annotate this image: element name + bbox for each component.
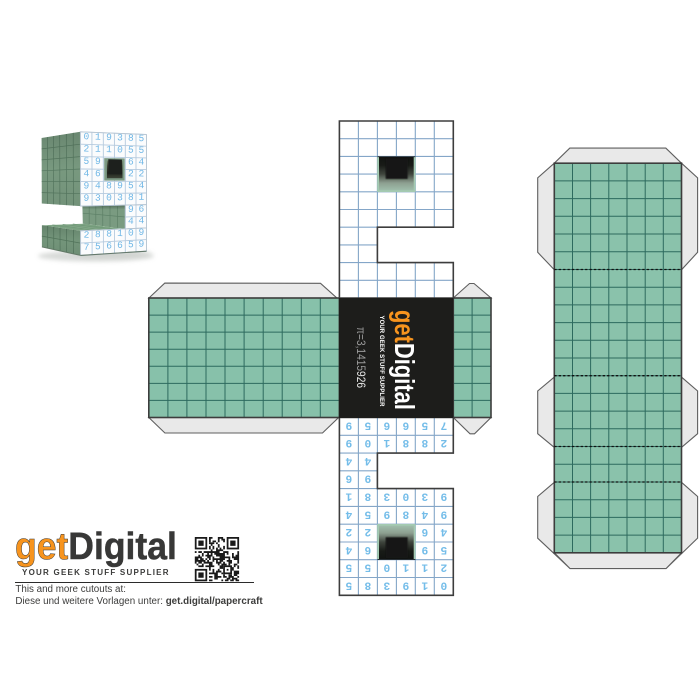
svg-text:6: 6 xyxy=(383,418,390,430)
svg-text:1: 1 xyxy=(95,144,101,155)
svg-text:2: 2 xyxy=(83,143,89,154)
svg-text:5: 5 xyxy=(440,543,447,555)
svg-text:6: 6 xyxy=(128,156,134,167)
svg-text:4: 4 xyxy=(83,168,89,179)
svg-text:5: 5 xyxy=(138,133,144,144)
svg-text:8: 8 xyxy=(364,490,371,502)
svg-text:1: 1 xyxy=(345,490,352,502)
svg-text:0: 0 xyxy=(364,436,371,448)
svg-text:9: 9 xyxy=(106,132,112,143)
svg-text:7: 7 xyxy=(440,418,447,430)
svg-text:0: 0 xyxy=(128,227,134,238)
svg-text:5: 5 xyxy=(83,156,89,167)
svg-text:1: 1 xyxy=(421,561,428,573)
svg-text:0: 0 xyxy=(117,144,123,155)
svg-text:8: 8 xyxy=(106,228,112,239)
svg-text:2: 2 xyxy=(345,525,352,537)
svg-text:6: 6 xyxy=(138,203,144,214)
svg-text:5: 5 xyxy=(345,578,352,590)
svg-text:4: 4 xyxy=(95,180,101,191)
svg-text:5: 5 xyxy=(138,145,144,156)
svg-text:8: 8 xyxy=(95,229,101,240)
svg-text:6: 6 xyxy=(402,418,409,430)
svg-text:8: 8 xyxy=(128,192,134,203)
svg-text:0: 0 xyxy=(83,131,89,142)
svg-text:8: 8 xyxy=(106,180,112,191)
svg-text:3: 3 xyxy=(117,132,123,143)
svg-text:3: 3 xyxy=(117,192,123,203)
svg-text:8: 8 xyxy=(128,133,134,144)
svg-text:4: 4 xyxy=(345,454,352,466)
svg-text:8: 8 xyxy=(364,578,371,590)
svg-text:4: 4 xyxy=(128,216,134,227)
svg-text:6: 6 xyxy=(95,168,101,179)
svg-text:6: 6 xyxy=(106,240,112,251)
svg-text:5: 5 xyxy=(364,418,371,430)
svg-text:8: 8 xyxy=(421,436,428,448)
svg-text:3: 3 xyxy=(383,578,390,590)
svg-text:3: 3 xyxy=(421,490,428,502)
svg-text:9: 9 xyxy=(138,238,144,249)
svg-text:2: 2 xyxy=(83,229,89,240)
svg-text:7: 7 xyxy=(83,242,89,253)
svg-text:9: 9 xyxy=(364,472,371,484)
svg-text:1: 1 xyxy=(138,192,144,203)
svg-text:5: 5 xyxy=(128,239,134,250)
svg-text:3: 3 xyxy=(95,192,101,203)
svg-text:8: 8 xyxy=(402,507,409,519)
svg-text:1: 1 xyxy=(383,436,390,448)
svg-text:9: 9 xyxy=(402,578,409,590)
svg-text:9: 9 xyxy=(421,543,428,555)
svg-text:9: 9 xyxy=(440,507,447,519)
svg-text:3: 3 xyxy=(383,490,390,502)
svg-text:2: 2 xyxy=(138,168,144,179)
svg-text:5: 5 xyxy=(128,144,134,155)
svg-text:9: 9 xyxy=(440,490,447,502)
svg-text:4: 4 xyxy=(440,525,447,537)
svg-text:4: 4 xyxy=(138,156,144,167)
svg-text:4: 4 xyxy=(138,180,144,191)
svg-text:5: 5 xyxy=(345,561,352,573)
svg-text:2: 2 xyxy=(364,525,371,537)
svg-text:4: 4 xyxy=(364,454,371,466)
svg-text:1: 1 xyxy=(95,131,101,142)
svg-text:1: 1 xyxy=(117,228,123,239)
svg-text:5: 5 xyxy=(128,180,134,191)
svg-text:1: 1 xyxy=(402,561,409,573)
svg-text:4: 4 xyxy=(345,543,352,555)
svg-text:1: 1 xyxy=(106,144,112,155)
svg-text:5: 5 xyxy=(364,561,371,573)
svg-text:2: 2 xyxy=(440,436,447,448)
svg-text:9: 9 xyxy=(345,436,352,448)
svg-text:0: 0 xyxy=(106,192,112,203)
svg-text:4: 4 xyxy=(138,215,144,226)
svg-text:5: 5 xyxy=(421,418,428,430)
svg-text:2: 2 xyxy=(128,168,134,179)
svg-text:0: 0 xyxy=(402,490,409,502)
svg-text:5: 5 xyxy=(364,507,371,519)
svg-text:2: 2 xyxy=(440,561,447,573)
svg-text:9: 9 xyxy=(117,180,123,191)
svg-text:9: 9 xyxy=(383,507,390,519)
svg-text:9: 9 xyxy=(95,156,101,167)
svg-text:4: 4 xyxy=(421,507,428,519)
svg-text:6: 6 xyxy=(117,240,123,251)
svg-text:9: 9 xyxy=(128,204,134,215)
svg-text:5: 5 xyxy=(95,241,101,252)
svg-text:9: 9 xyxy=(83,193,89,204)
svg-text:0: 0 xyxy=(440,578,447,590)
svg-text:9: 9 xyxy=(138,227,144,238)
svg-text:6: 6 xyxy=(364,543,371,555)
svg-text:6: 6 xyxy=(345,472,352,484)
svg-text:4: 4 xyxy=(345,507,352,519)
svg-text:6: 6 xyxy=(421,525,428,537)
svg-text:8: 8 xyxy=(402,436,409,448)
svg-text:1: 1 xyxy=(421,578,428,590)
svg-text:9: 9 xyxy=(83,180,89,191)
svg-text:9: 9 xyxy=(345,418,352,430)
svg-text:0: 0 xyxy=(383,561,390,573)
